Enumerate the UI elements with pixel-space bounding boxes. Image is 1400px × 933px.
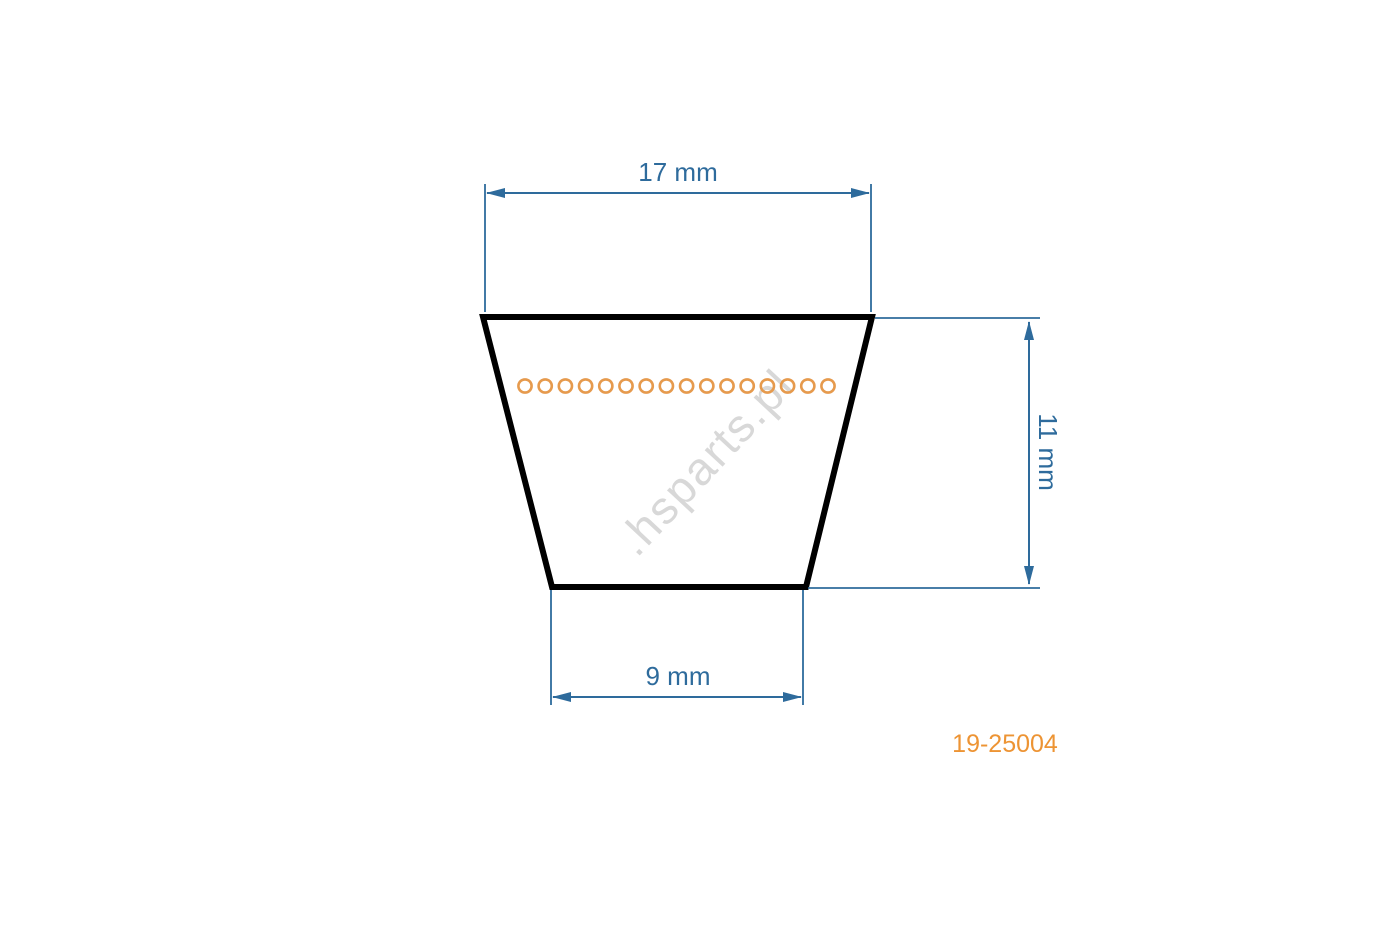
dimension-bottom-width: 9 mm: [551, 590, 803, 705]
cord-circle-icon: [680, 379, 693, 392]
drawing-canvas: .hsparts.pl 17 mm 11 mm: [0, 0, 1400, 933]
cord-circle-icon: [579, 379, 592, 392]
arrowhead-right-icon: [851, 188, 870, 198]
cord-circle-icon: [720, 379, 733, 392]
bottom-width-label: 9 mm: [646, 661, 711, 691]
top-width-label: 17 mm: [638, 157, 717, 187]
arrowhead-right-icon: [783, 692, 802, 702]
dimension-height: 11 mm: [808, 318, 1063, 588]
height-label: 11 mm: [1033, 413, 1063, 491]
cord-circle-icon: [559, 379, 572, 392]
belt-diagram: .hsparts.pl 17 mm 11 mm: [0, 0, 1400, 933]
arrowhead-up-icon: [1024, 321, 1034, 340]
arrowhead-left-icon: [552, 692, 571, 702]
cord-circle-icon: [660, 379, 673, 392]
cord-circle-icon: [619, 379, 632, 392]
cord-circle-icon: [821, 379, 834, 392]
cord-circle-icon: [539, 379, 552, 392]
cord-circle-icon: [700, 379, 713, 392]
cord-circle-icon: [518, 379, 531, 392]
cord-circle-icon: [640, 379, 653, 392]
dimension-top-width: 17 mm: [485, 157, 871, 312]
cord-circle-icon: [801, 379, 814, 392]
cord-circle-icon: [599, 379, 612, 392]
arrowhead-down-icon: [1024, 566, 1034, 585]
arrowhead-left-icon: [486, 188, 505, 198]
part-number: 19-25004: [952, 730, 1058, 758]
